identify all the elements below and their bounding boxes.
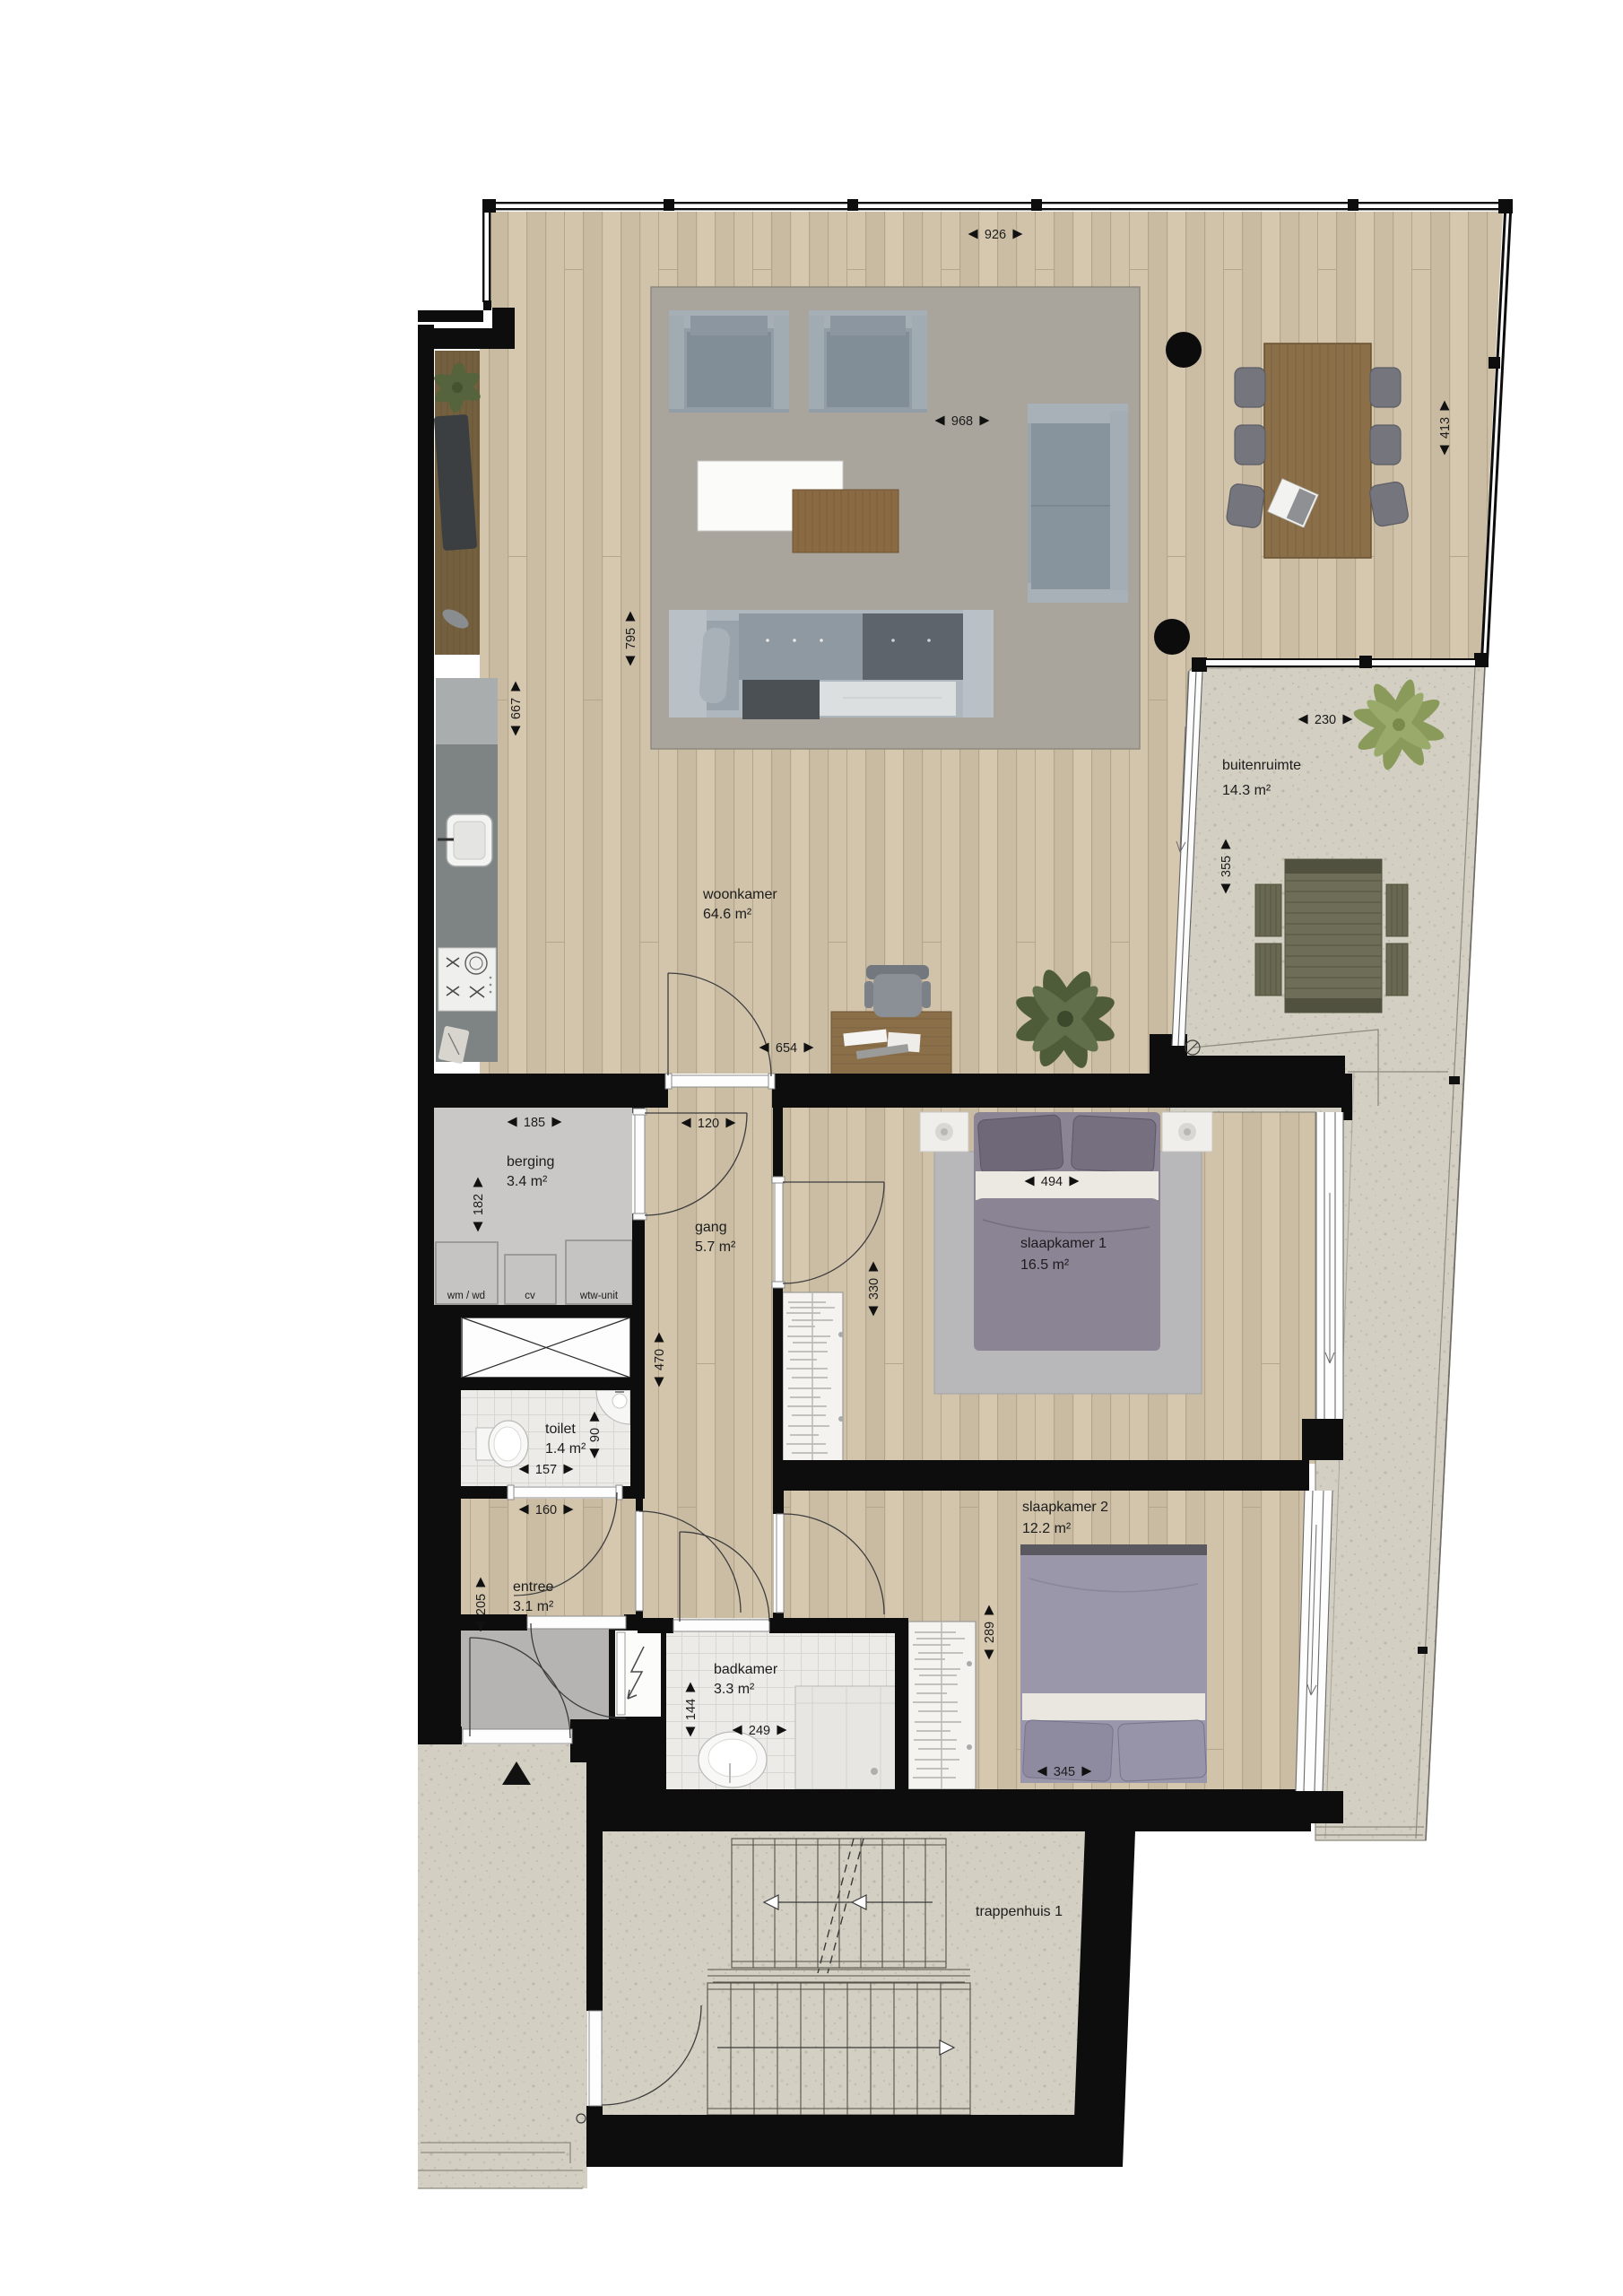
svg-text:654: 654 — [776, 1041, 797, 1056]
svg-text:182: 182 — [472, 1194, 486, 1215]
svg-text:355: 355 — [1219, 856, 1234, 877]
svg-text:wtw-unit: wtw-unit — [579, 1291, 619, 1301]
svg-text:wm / wd: wm / wd — [447, 1291, 485, 1301]
svg-text:494: 494 — [1041, 1175, 1063, 1189]
svg-text:3.4 m²: 3.4 m² — [507, 1174, 548, 1189]
svg-text:345: 345 — [1054, 1765, 1075, 1779]
svg-text:667: 667 — [509, 698, 524, 719]
svg-text:1.4 m²: 1.4 m² — [545, 1441, 586, 1457]
svg-text:16.5 m²: 16.5 m² — [1020, 1257, 1070, 1273]
svg-text:12.2 m²: 12.2 m² — [1022, 1521, 1072, 1536]
svg-text:gang: gang — [695, 1220, 727, 1235]
svg-text:330: 330 — [867, 1278, 881, 1300]
svg-text:795: 795 — [624, 628, 638, 649]
svg-text:144: 144 — [684, 1699, 699, 1720]
svg-text:289: 289 — [983, 1622, 997, 1643]
svg-text:badkamer: badkamer — [714, 1662, 778, 1677]
svg-text:64.6 m²: 64.6 m² — [703, 907, 752, 922]
svg-text:slaapkamer 2: slaapkamer 2 — [1022, 1500, 1108, 1515]
svg-text:cv: cv — [525, 1291, 535, 1301]
svg-text:926: 926 — [985, 228, 1006, 242]
svg-text:160: 160 — [535, 1503, 557, 1518]
svg-text:120: 120 — [698, 1117, 719, 1131]
svg-text:413: 413 — [1438, 417, 1453, 439]
svg-text:3.3 m²: 3.3 m² — [714, 1682, 755, 1697]
svg-text:slaapkamer 1: slaapkamer 1 — [1020, 1236, 1107, 1251]
svg-text:entree: entree — [513, 1579, 553, 1595]
svg-text:5.7 m²: 5.7 m² — [695, 1239, 736, 1255]
svg-text:185: 185 — [524, 1116, 545, 1130]
svg-text:14.3 m²: 14.3 m² — [1222, 783, 1271, 798]
svg-text:470: 470 — [653, 1349, 667, 1370]
svg-text:249: 249 — [749, 1724, 770, 1738]
svg-text:buitenruimte: buitenruimte — [1222, 758, 1301, 773]
svg-text:trappenhuis 1: trappenhuis 1 — [976, 1904, 1063, 1919]
svg-text:90: 90 — [588, 1428, 603, 1442]
svg-text:157: 157 — [535, 1463, 557, 1477]
svg-text:205: 205 — [474, 1594, 489, 1615]
svg-text:968: 968 — [951, 414, 973, 429]
svg-text:berging: berging — [507, 1154, 554, 1170]
svg-text:toilet: toilet — [545, 1422, 576, 1437]
svg-text:woonkamer: woonkamer — [702, 887, 777, 902]
svg-text:230: 230 — [1315, 713, 1336, 727]
svg-text:3.1 m²: 3.1 m² — [513, 1599, 554, 1614]
